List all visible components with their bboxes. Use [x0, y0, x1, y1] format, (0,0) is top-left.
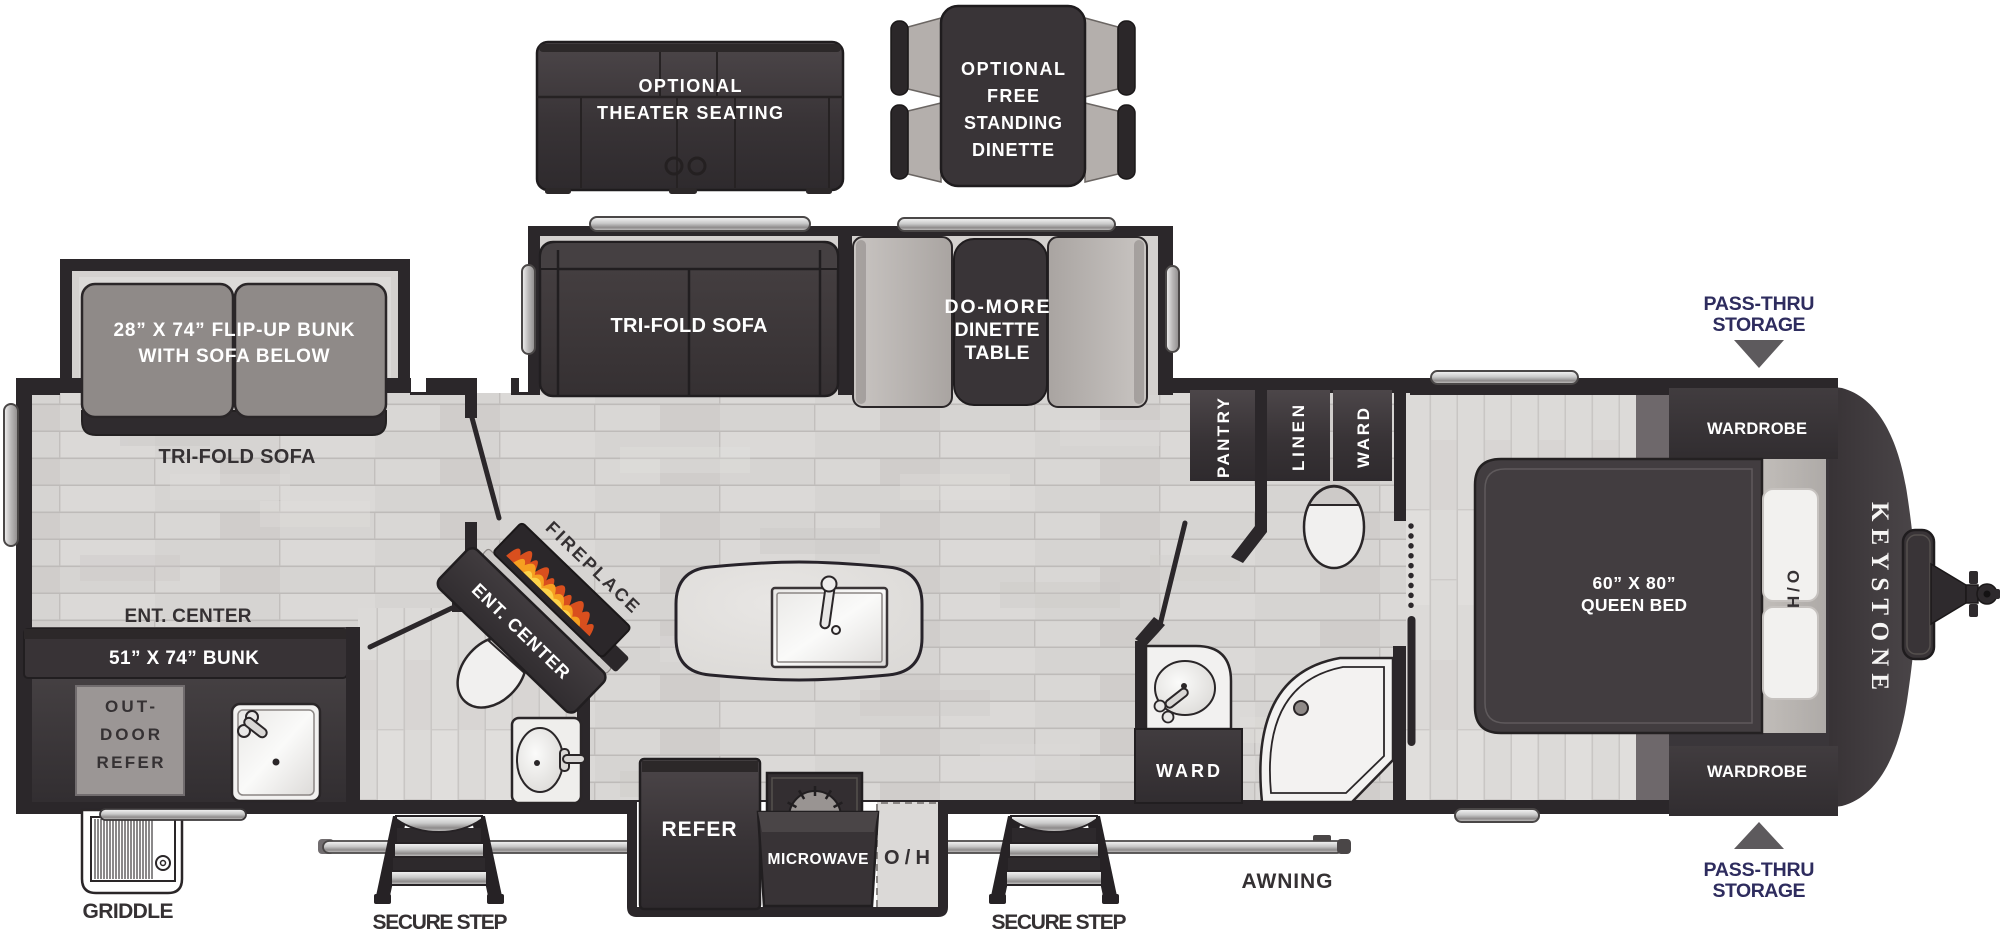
- svg-text:TABLE: TABLE: [965, 342, 1030, 364]
- svg-text:AWNING: AWNING: [1242, 870, 1333, 893]
- svg-text:60” X 80”: 60” X 80”: [1593, 573, 1676, 593]
- svg-text:PASS-THRU: PASS-THRU: [1704, 859, 1815, 881]
- svg-text:GRIDDLE: GRIDDLE: [83, 900, 174, 923]
- svg-text:STORAGE: STORAGE: [1713, 314, 1806, 336]
- svg-text:DINETTE: DINETTE: [955, 319, 1040, 341]
- svg-text:PASS-THRU: PASS-THRU: [1704, 293, 1815, 315]
- svg-text:28” X 74” FLIP-UP BUNK: 28” X 74” FLIP-UP BUNK: [114, 320, 355, 341]
- svg-text:ENT. CENTER: ENT. CENTER: [125, 606, 252, 627]
- svg-text:STANDING: STANDING: [964, 113, 1062, 133]
- svg-text:O/H: O/H: [884, 847, 930, 869]
- svg-text:OPTIONAL: OPTIONAL: [961, 59, 1065, 79]
- svg-text:LINEN: LINEN: [1289, 405, 1308, 471]
- svg-text:TRI-FOLD SOFA: TRI-FOLD SOFA: [159, 446, 316, 468]
- svg-text:QUEEN BED: QUEEN BED: [1581, 595, 1687, 615]
- svg-text:OPTIONAL: OPTIONAL: [639, 76, 742, 96]
- svg-text:H/O: H/O: [1784, 570, 1803, 608]
- svg-text:WARD: WARD: [1354, 408, 1373, 468]
- svg-text:SECURE STEP: SECURE STEP: [373, 911, 508, 934]
- svg-text:STORAGE: STORAGE: [1713, 880, 1806, 902]
- svg-text:51” X 74” BUNK: 51” X 74” BUNK: [109, 648, 259, 669]
- svg-text:SECURE STEP: SECURE STEP: [992, 911, 1127, 934]
- svg-text:DO-MORE: DO-MORE: [945, 296, 1050, 318]
- svg-text:MICROWAVE: MICROWAVE: [768, 851, 869, 868]
- svg-text:REFER: REFER: [97, 753, 164, 772]
- svg-text:FREE: FREE: [987, 86, 1039, 106]
- svg-text:REFER: REFER: [662, 818, 737, 841]
- svg-text:THEATER SEATING: THEATER SEATING: [597, 103, 783, 123]
- svg-text:WITH SOFA BELOW: WITH SOFA BELOW: [139, 346, 330, 367]
- svg-text:TRI-FOLD SOFA: TRI-FOLD SOFA: [611, 315, 768, 337]
- svg-text:WARDROBE: WARDROBE: [1707, 763, 1807, 781]
- svg-text:WARDROBE: WARDROBE: [1707, 420, 1807, 438]
- svg-text:DINETTE: DINETTE: [972, 140, 1054, 160]
